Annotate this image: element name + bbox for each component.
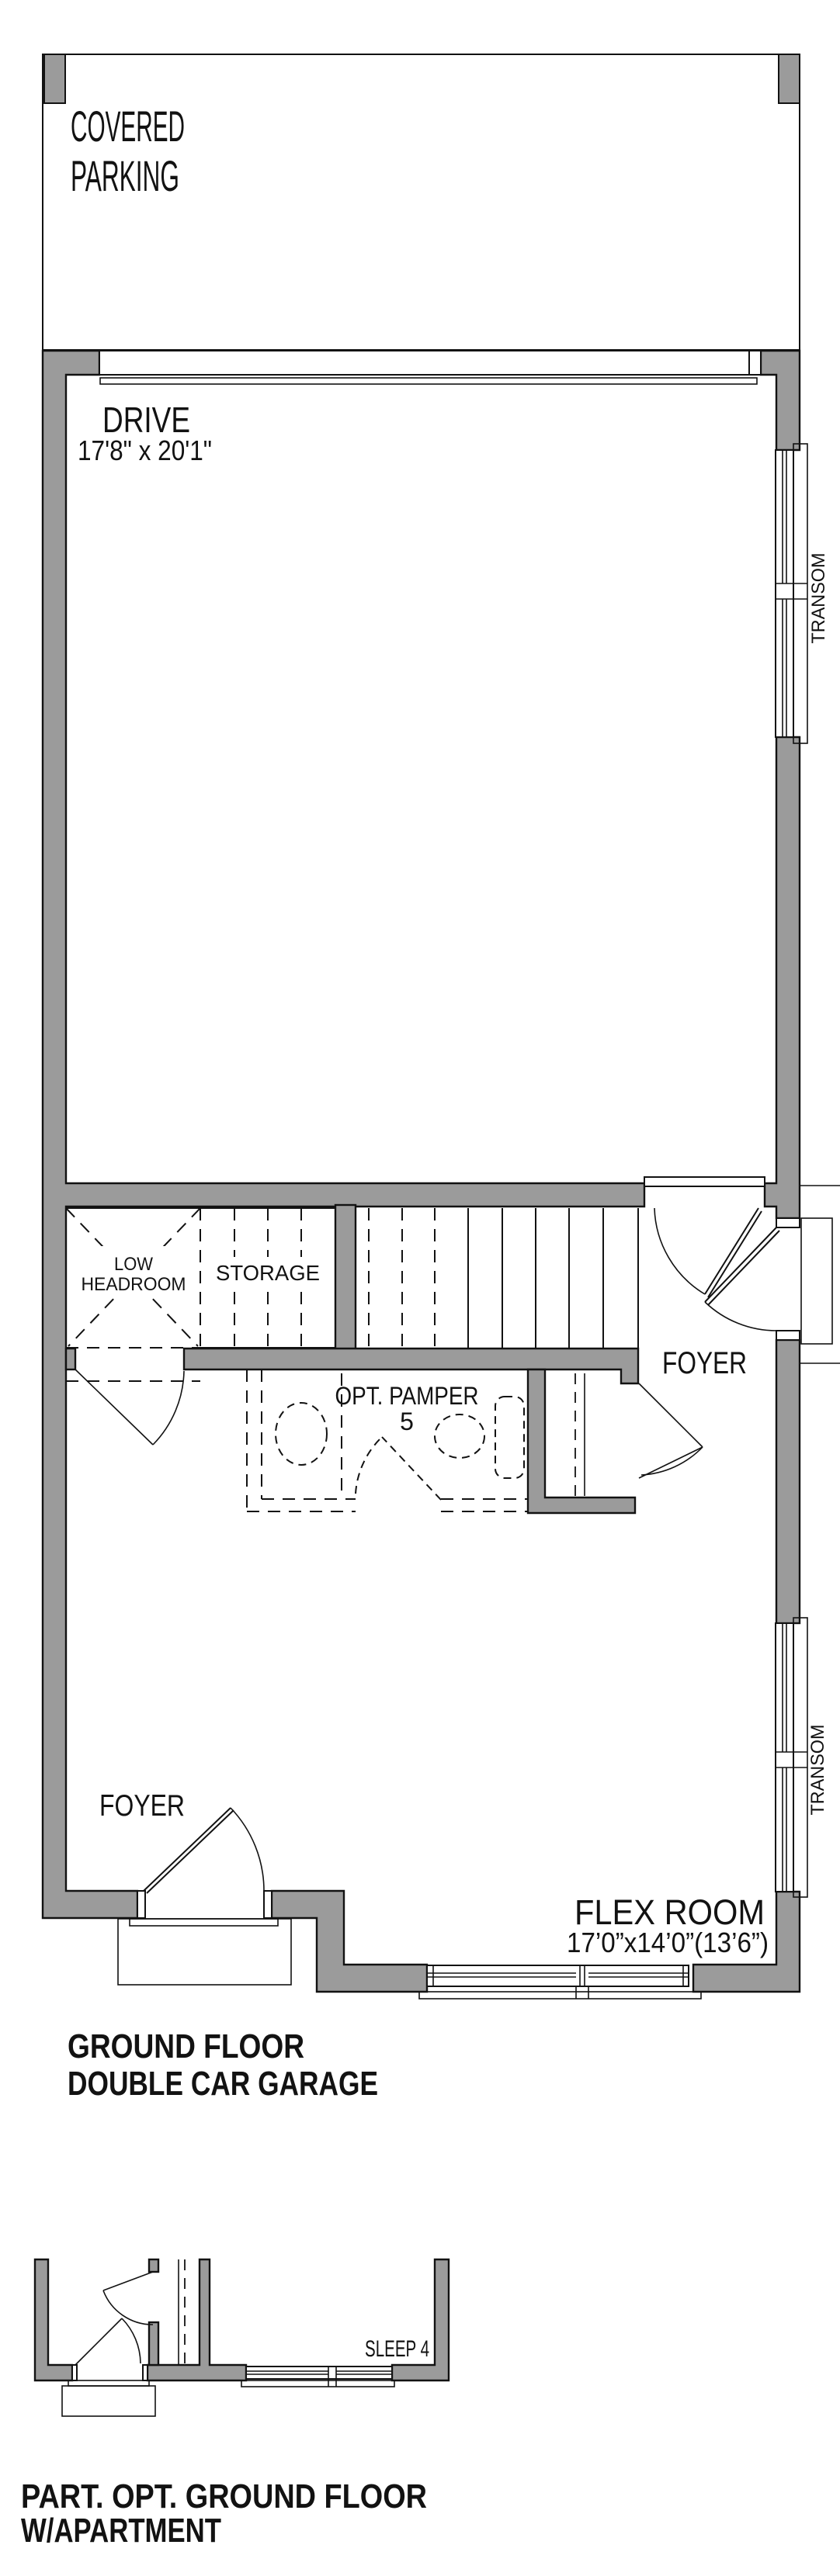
opt-pamper-number: 5 bbox=[400, 1407, 414, 1435]
apt-left-wall bbox=[35, 2259, 72, 2380]
front-porch bbox=[118, 1919, 291, 1985]
window-frame bbox=[776, 450, 793, 737]
left-exterior-wall bbox=[43, 351, 644, 1918]
low-headroom-label-2: HEADROOM bbox=[82, 1274, 186, 1295]
foyer-front-door bbox=[118, 1808, 291, 1985]
apt-inner-door-leaf bbox=[103, 2272, 153, 2290]
garage-door-end bbox=[749, 351, 761, 375]
closet-jamb-stub bbox=[66, 1349, 75, 1369]
toilet-bowl bbox=[435, 1414, 484, 1458]
staircase bbox=[369, 1208, 638, 1349]
entry-landing bbox=[801, 1218, 832, 1344]
door-swing-arc bbox=[153, 1371, 184, 1445]
door-threshold-top bbox=[776, 1218, 800, 1227]
flex-room-window bbox=[419, 1965, 701, 1999]
sink-fixture bbox=[276, 1403, 327, 1465]
apt-door-stub-bottom bbox=[149, 2322, 158, 2365]
apt-door-stub-top bbox=[149, 2259, 158, 2272]
pamper-wall-left-dashed bbox=[247, 1369, 262, 1511]
pamper-wall-bottom-dashed bbox=[247, 1499, 528, 1511]
pamper-door-arc-dashed bbox=[356, 1437, 382, 1494]
opt-pamper-label: OPT. PAMPER bbox=[335, 1382, 479, 1410]
apt-mid-wall bbox=[148, 2259, 246, 2380]
transom-window-lower bbox=[776, 1618, 807, 1897]
apt-porch bbox=[62, 2386, 155, 2416]
door-threshold-right bbox=[264, 1891, 272, 1918]
floor-plan-page: COVERED PARKING DRIVE 17'8" x 20'1" TRAN… bbox=[0, 0, 840, 2576]
storage-stair-wall bbox=[335, 1205, 356, 1354]
transom-window-upper bbox=[776, 444, 807, 743]
stair-risers-dashed bbox=[369, 1208, 435, 1348]
stair-risers bbox=[468, 1208, 603, 1348]
transom-lower-label: TRANSOM bbox=[807, 1725, 828, 1816]
door-leaf bbox=[705, 1227, 779, 1305]
foyer-lower-label: FOYER bbox=[99, 1789, 185, 1823]
pamper-door-leaf-dashed bbox=[382, 1437, 441, 1500]
window-sill-outer bbox=[793, 1618, 807, 1897]
floor-plan-drawing: COVERED PARKING DRIVE 17'8" x 20'1" TRAN… bbox=[0, 0, 840, 2576]
apt-entry-door-leaf bbox=[75, 2318, 122, 2365]
garage-door-track bbox=[100, 378, 757, 384]
porch-step bbox=[130, 1919, 278, 1926]
door-swing-arc bbox=[705, 1302, 776, 1331]
window-mullion-notch bbox=[576, 1986, 588, 1999]
door-threshold-bottom bbox=[776, 1331, 800, 1340]
garage-entry-door bbox=[644, 1177, 765, 1297]
apt-door-threshold-right bbox=[143, 2365, 148, 2380]
toilet-tank bbox=[495, 1397, 524, 1478]
apt-entry-door-arc bbox=[122, 2318, 141, 2363]
exterior-step-lines bbox=[800, 1186, 840, 1363]
right-wall-middle bbox=[765, 737, 800, 1218]
door-swing-arc bbox=[231, 1808, 264, 1891]
window-frame bbox=[427, 1965, 689, 1986]
pamper-l-wall bbox=[528, 1369, 635, 1513]
apt-door-threshold-left bbox=[72, 2365, 77, 2380]
apartment-partial-plan: SLEEP 4 PART. OPT. GROUND FLOOR W/APARTM… bbox=[21, 2259, 449, 2550]
right-wall-lower bbox=[776, 1340, 800, 1623]
storage-label: STORAGE bbox=[216, 1261, 320, 1285]
parking-post-right bbox=[779, 54, 800, 103]
exterior-walls bbox=[43, 351, 800, 1992]
niche-door-leaf bbox=[639, 1383, 703, 1478]
entry-door bbox=[705, 1186, 840, 1363]
garage-door bbox=[99, 351, 761, 384]
foyer-upper-label: FOYER bbox=[662, 1346, 747, 1380]
apt-right-wall bbox=[392, 2259, 449, 2380]
covered-parking-area bbox=[43, 54, 800, 350]
apt-inner-door-arc bbox=[103, 2290, 153, 2325]
door-swing-arc bbox=[654, 1208, 705, 1294]
understair-wall bbox=[184, 1349, 638, 1383]
window-frame bbox=[776, 1623, 793, 1892]
main-caption-line2: DOUBLE CAR GARAGE bbox=[68, 2065, 378, 2103]
covered-parking-label-2: PARKING bbox=[71, 151, 179, 200]
transom-upper-label: TRANSOM bbox=[808, 553, 829, 644]
main-plan-labels: COVERED PARKING DRIVE 17'8" x 20'1" TRAN… bbox=[68, 102, 829, 2103]
understair-closet-door bbox=[66, 1369, 200, 1445]
covered-parking-outline bbox=[43, 54, 800, 350]
apt-caption-line2: W/APARTMENT bbox=[21, 2512, 221, 2550]
main-caption-line1: GROUND FLOOR bbox=[68, 2027, 304, 2065]
sleep4-label: SLEEP 4 bbox=[365, 2336, 429, 2362]
apt-window-sill bbox=[241, 2380, 394, 2387]
window-sill-outer bbox=[793, 444, 807, 743]
flex-room-dimensions: 17’0”x14’0”(13’6”) bbox=[567, 1927, 769, 1958]
bottom-step-wall bbox=[272, 1891, 427, 1992]
covered-parking-label-1: COVERED bbox=[71, 102, 185, 151]
door-threshold-left bbox=[137, 1891, 145, 1918]
drive-dimensions: 17'8" x 20'1" bbox=[78, 435, 212, 466]
apt-porch-step bbox=[68, 2380, 149, 2386]
apt-window-frame bbox=[246, 2367, 392, 2379]
parking-post-left bbox=[44, 54, 65, 103]
foyer-closet-niche bbox=[575, 1373, 703, 1496]
window-sill-outer bbox=[419, 1992, 701, 1999]
garage-door-panel bbox=[99, 351, 749, 375]
right-wall-top bbox=[761, 351, 800, 450]
door-threshold bbox=[644, 1177, 765, 1186]
low-headroom-label-1: LOW bbox=[114, 1254, 153, 1275]
apt-caption-line1: PART. OPT. GROUND FLOOR bbox=[21, 2477, 427, 2515]
